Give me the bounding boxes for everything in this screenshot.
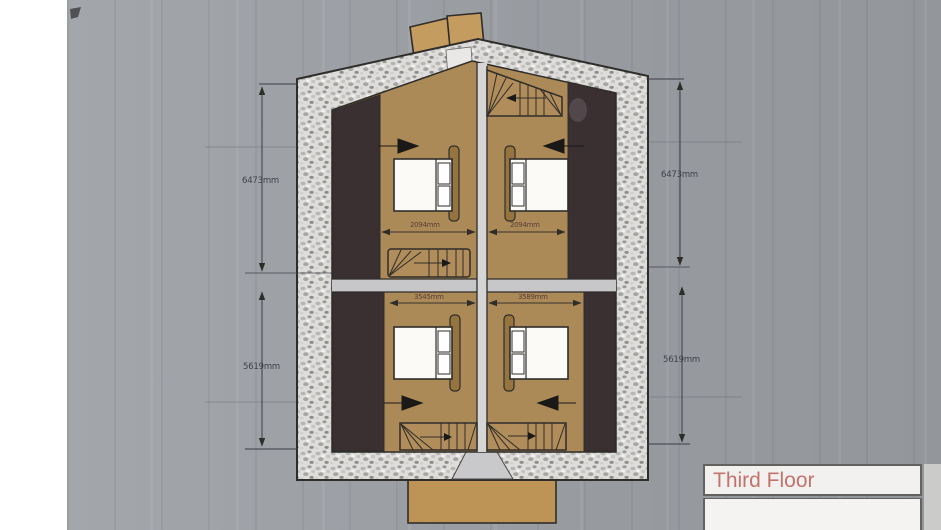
- eaves-lower-left: [333, 292, 384, 451]
- dim-label-upper-left-room: 2094mm: [410, 221, 440, 229]
- staircase-lower-right: [487, 423, 566, 450]
- bed-lower-left: [394, 315, 460, 391]
- floor-division-band: [332, 279, 616, 292]
- dim-label-lower-left-room: 3545mm: [414, 293, 444, 301]
- title-block-right-margin: [924, 464, 941, 530]
- bed-lower-right: [504, 315, 568, 391]
- party-wall: [477, 63, 487, 452]
- title-block: Third Floor: [703, 464, 922, 496]
- floor-plan-drawing: [0, 0, 941, 530]
- dim-label-upper-right-room: 2094mm: [510, 221, 540, 229]
- eaves-upper-left: [333, 95, 380, 279]
- dim-label-left-lower: 5619mm: [243, 362, 280, 372]
- eaves-lower-right: [584, 292, 615, 451]
- dim-label-right-upper: 6473mm: [661, 170, 698, 180]
- staircase-lower-left: [400, 423, 477, 450]
- staircase-upper-left: [388, 249, 470, 277]
- scan-smudge: [70, 7, 81, 19]
- scanned-floor-plan-page: 6473mm 5619mm 6473mm 5619mm 2094mm 2094m…: [0, 0, 941, 530]
- dim-label-right-lower: 5619mm: [663, 355, 700, 365]
- title-block-empty-row: [703, 498, 922, 530]
- scan-smudge-dark-zone: [569, 98, 587, 122]
- dim-label-lower-right-room: 3589mm: [518, 293, 548, 301]
- dim-label-left-upper: 6473mm: [242, 176, 279, 186]
- drawing-title: Third Floor: [705, 466, 920, 493]
